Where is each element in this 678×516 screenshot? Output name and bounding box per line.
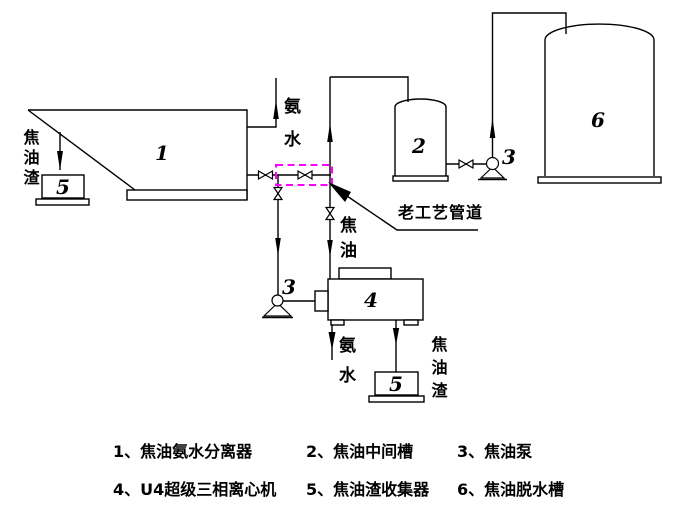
flow-arrow-down-ammonia — [329, 332, 336, 350]
stream-label-tar: 焦油 — [339, 214, 358, 264]
flow-arrow-down-residue — [393, 328, 399, 345]
flow-arrow-down-tar — [327, 240, 333, 257]
dewatering-tank-base — [538, 177, 661, 183]
valve-vertical-left-icon — [274, 194, 282, 200]
valve-vertical-tar-icon — [326, 214, 334, 220]
equipment-number-intermediate-tank: 2 — [412, 136, 426, 156]
equipment-number-collector-bottom: 5 — [389, 374, 403, 394]
valve-main-2-icon — [305, 171, 312, 179]
stream-label-ammonia-water-top: 氨水 — [283, 91, 302, 157]
legend-item-separator: 1、焦油氨水分离器 — [113, 438, 252, 462]
centrifuge-top-cover — [339, 268, 391, 279]
equipment-number-dewatering-tank: 6 — [591, 110, 605, 130]
separator-base — [127, 190, 247, 200]
centrifuge-leg-left — [331, 320, 344, 325]
equipment-number-pump-right: 3 — [502, 147, 516, 167]
intermediate-tank-base — [393, 176, 448, 181]
equipment-number-centrifuge: 4 — [364, 290, 378, 310]
legend-item-residue-collector: 5、焦油渣收集器 — [306, 476, 429, 500]
flow-arrow-up-vent — [273, 100, 279, 119]
flow-arrow-up-rightpump — [490, 118, 496, 138]
stream-label-ammonia-water-bottom: 氨水 — [338, 331, 357, 391]
flow-arrow-up-riser — [327, 123, 333, 142]
legend-item-intermediate-tank: 2、焦油中间槽 — [306, 438, 413, 462]
stream-label-tar-residue-bottom: 焦油渣 — [430, 333, 449, 402]
annotation-old-pipeline: 老工艺管道 — [398, 199, 483, 223]
legend-item-dewatering-tank: 6、焦油脱水槽 — [457, 476, 564, 500]
legend-item-tar-pump: 3、焦油泵 — [457, 438, 532, 462]
pipe-to-intermediate-tank — [330, 77, 408, 102]
pipe-ammonia-vent — [247, 78, 276, 127]
flow-arrow-down-leftpump — [275, 238, 281, 256]
centrifuge-leg-right — [404, 320, 418, 325]
valve-main-1-icon — [266, 171, 273, 179]
equipment-number-collector-left: 5 — [56, 177, 70, 197]
collector-bottom-base — [369, 396, 424, 402]
equipment-number-pump-left: 3 — [282, 277, 296, 297]
equipment-number-separator: 1 — [155, 143, 169, 163]
legend-item-centrifuge: 4、U4超级三相离心机 — [113, 476, 276, 500]
dewatering-tank-body — [545, 24, 654, 176]
pump-right-icon — [487, 158, 499, 170]
stream-label-tar-residue-left: 焦油渣 — [22, 128, 41, 188]
old-pipeline-arrowhead-icon — [328, 182, 351, 202]
flow-arrow-down-residue-left — [57, 151, 63, 170]
process-flow-diagram: 1 2 3 3 4 5 5 6 氨水 焦油渣 焦油 氨水 焦油渣 老工艺管道 1… — [0, 0, 678, 516]
pipe-to-dewatering-tank — [493, 13, 567, 158]
valve-tank2-outlet-icon — [466, 160, 473, 168]
collector-left-base — [36, 199, 89, 205]
centrifuge-inlet-box — [315, 291, 328, 311]
